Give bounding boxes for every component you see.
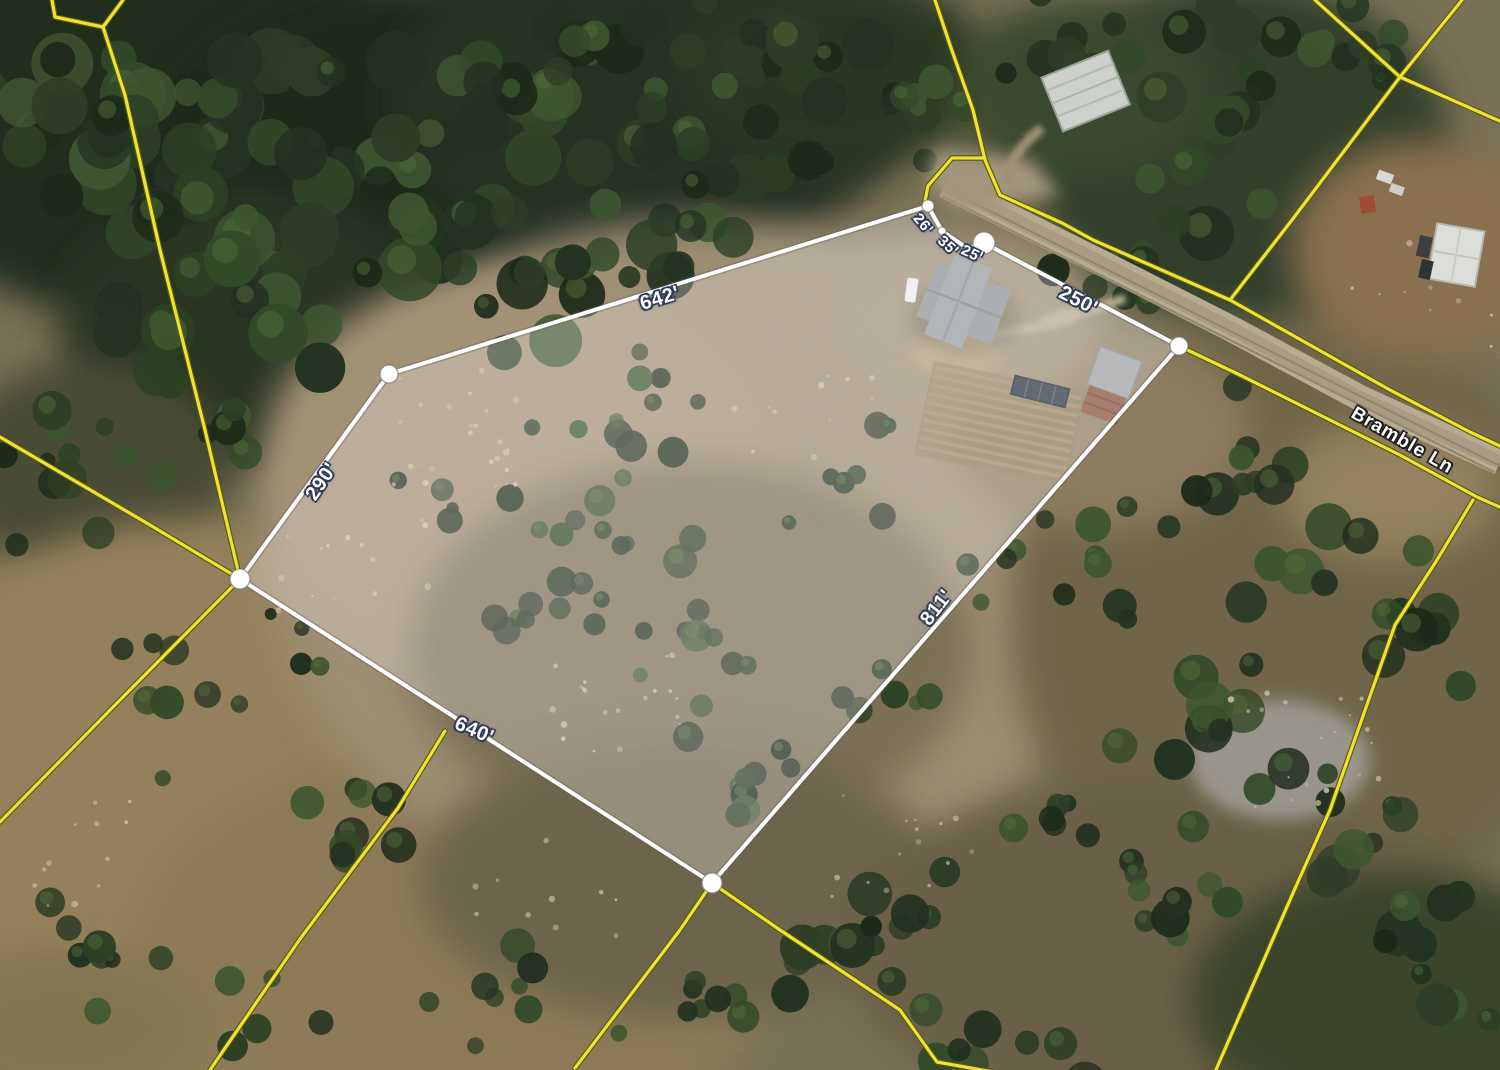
parcel-boundary-line <box>1215 500 1473 1070</box>
parcel-vertex-handle[interactable] <box>702 873 722 893</box>
parcel-vertex-handle[interactable] <box>230 569 250 589</box>
parcel-boundary-line <box>0 437 240 579</box>
parcel-vertex-handle[interactable] <box>1170 337 1188 355</box>
parcel-vertex-handle[interactable] <box>380 365 398 383</box>
parcel-boundary-line <box>924 158 985 206</box>
parcel-vertex-handle[interactable] <box>973 232 995 254</box>
parcel-boundary-line <box>1230 0 1462 300</box>
parcel-vertex-handle[interactable] <box>938 227 946 235</box>
satellite-parcel-map[interactable]: Bramble Ln 642'250'290'811'640'26'35'25' <box>0 0 1500 1070</box>
parcel-overlay <box>0 0 1500 1070</box>
parcel-boundary-line <box>1315 0 1500 122</box>
parcel-vertex-handle[interactable] <box>963 244 971 252</box>
parcel-boundary-line <box>1315 0 1500 122</box>
parcel-boundary-line <box>210 731 445 1070</box>
selected-parcel-shape[interactable] <box>240 206 1179 883</box>
parcel-boundary-line <box>575 883 712 1068</box>
parcel-boundary-line <box>103 0 123 27</box>
parcel-boundary-line <box>0 579 240 822</box>
parcel-boundary-line <box>712 883 993 1070</box>
parcel-vertex-handle[interactable] <box>922 200 934 212</box>
